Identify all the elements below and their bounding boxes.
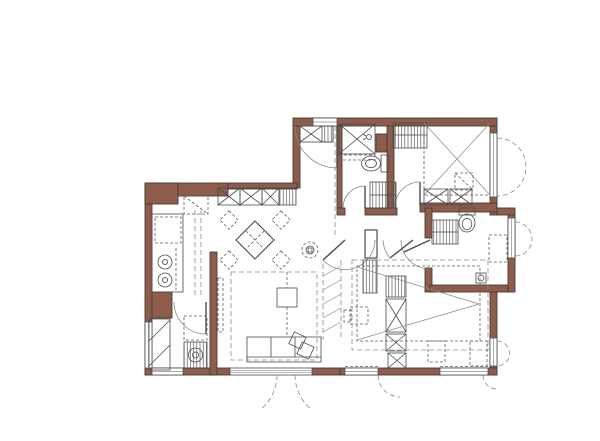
window-utility-bottom bbox=[152, 368, 183, 375]
coffee-table bbox=[277, 272, 297, 337]
wall-bath2-ext-top bbox=[497, 208, 515, 215]
window-utility-left bbox=[145, 322, 152, 368]
screen-partition bbox=[323, 260, 341, 340]
kitchen bbox=[152, 196, 208, 292]
fridge bbox=[184, 196, 208, 214]
floor-plan-drawing bbox=[0, 0, 600, 441]
ceiling-light-icon bbox=[302, 242, 318, 258]
wall-bath2-bottom bbox=[430, 285, 508, 292]
wall-living-left bbox=[210, 252, 217, 375]
hall-storage bbox=[363, 260, 406, 368]
shelf-hatch bbox=[279, 188, 296, 205]
bath1-cabinet bbox=[370, 182, 396, 208]
side-table-chair bbox=[344, 307, 368, 324]
wall-bath1-left bbox=[337, 126, 342, 208]
vanity-cabinet bbox=[432, 220, 458, 244]
window-bedroom1-right bbox=[490, 133, 526, 197]
wardrobe-row bbox=[218, 188, 296, 205]
wall-topleft-block bbox=[145, 183, 178, 204]
bath2-door bbox=[401, 240, 430, 269]
window-entry-top bbox=[313, 118, 337, 126]
bathroom2 bbox=[432, 208, 507, 283]
bath1-door bbox=[343, 186, 365, 208]
casement-swing bbox=[497, 138, 526, 196]
shower-head-icon bbox=[367, 135, 372, 140]
door-swing bbox=[260, 375, 277, 410]
floor-drain-icon bbox=[476, 273, 486, 283]
sink-unit bbox=[155, 217, 181, 243]
kitchen-counter bbox=[152, 214, 183, 292]
shower-storage bbox=[489, 235, 507, 262]
door-swing-corner bbox=[483, 375, 497, 389]
wall-kitchen-utility-stub bbox=[152, 292, 172, 318]
wall-bath1-niche bbox=[376, 134, 387, 152]
casement-swing bbox=[515, 222, 532, 256]
entry-hall bbox=[300, 126, 333, 142]
door-swing bbox=[295, 375, 312, 410]
cooktop-burner bbox=[158, 255, 172, 269]
washer-dryer-stack bbox=[184, 316, 207, 368]
door-swing-master-bottom bbox=[378, 375, 400, 397]
window-bath2-right bbox=[508, 218, 532, 258]
wardrobe-xbox-column bbox=[386, 299, 406, 368]
tv-panel bbox=[218, 278, 223, 332]
sofa bbox=[247, 337, 321, 362]
bedroom1-door bbox=[395, 182, 420, 206]
window-master-bottom-2 bbox=[440, 367, 488, 376]
window-master-bottom-1 bbox=[345, 367, 378, 376]
nightstand bbox=[455, 173, 473, 190]
shelf-hatch bbox=[363, 260, 377, 293]
utility-door bbox=[174, 302, 206, 334]
wall-bath2-left-upper bbox=[425, 208, 432, 238]
shower bbox=[339, 124, 375, 154]
bench bbox=[428, 341, 445, 362]
utility-room bbox=[149, 316, 207, 370]
side-table bbox=[289, 332, 314, 359]
desk bbox=[393, 123, 427, 148]
dining-area bbox=[218, 188, 318, 269]
wall-upper-left bbox=[293, 126, 300, 188]
master-door-right bbox=[383, 240, 413, 258]
wall-bath1-bottom bbox=[365, 208, 397, 215]
floor-plan-canvas bbox=[0, 0, 600, 441]
dining-table bbox=[236, 221, 274, 259]
balcony-door bbox=[230, 368, 312, 410]
living-room bbox=[218, 260, 341, 362]
window-master-right bbox=[490, 338, 509, 366]
wall-bottom-mid bbox=[312, 368, 340, 375]
shoe-cabinet bbox=[300, 126, 333, 142]
toilet bbox=[362, 155, 390, 172]
wall-bath1-bottom-stub bbox=[337, 208, 345, 215]
casement-swing bbox=[497, 341, 509, 366]
bedroom1 bbox=[393, 123, 490, 205]
rug bbox=[231, 272, 317, 360]
double-bed bbox=[424, 123, 490, 195]
cooktop-burner bbox=[158, 273, 172, 287]
bench bbox=[470, 341, 487, 366]
